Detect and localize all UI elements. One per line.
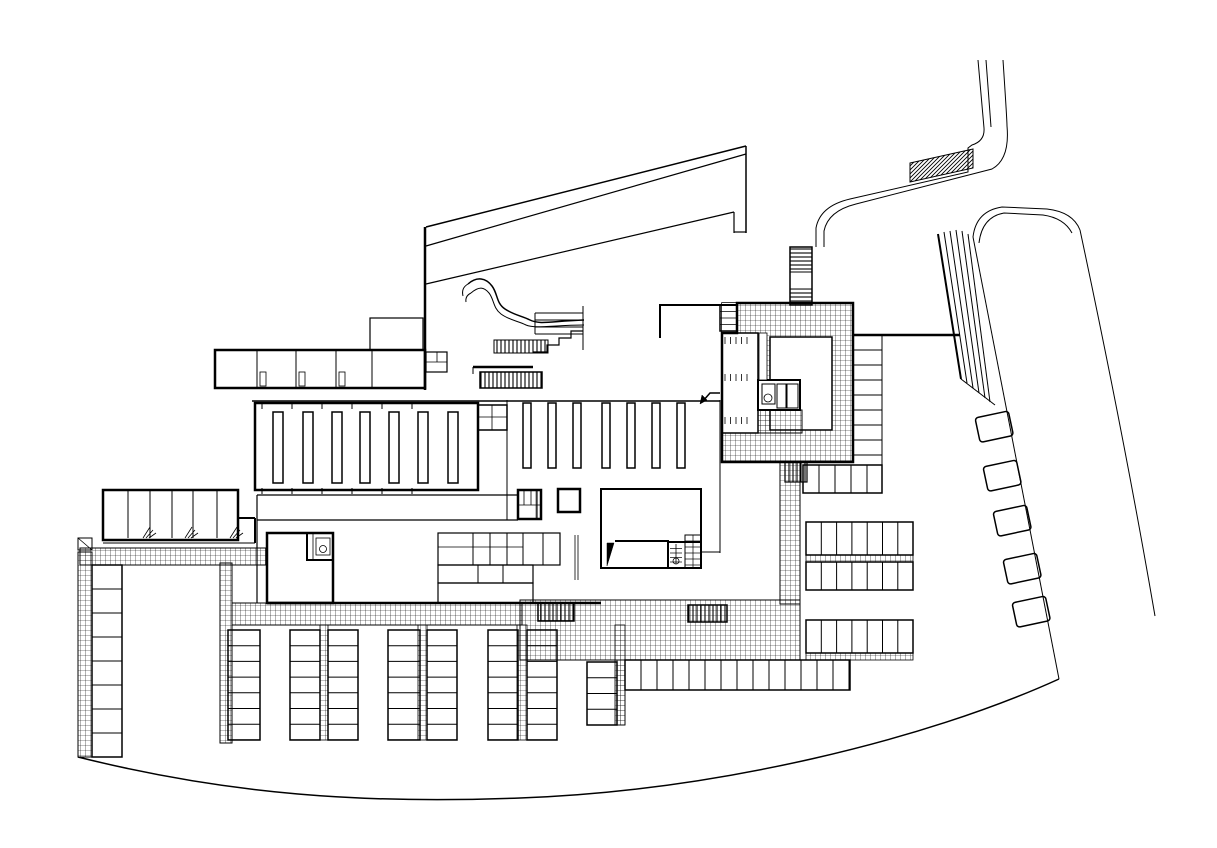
terminal-room-west xyxy=(722,333,758,433)
plaza-entry-stair-e xyxy=(688,605,727,622)
plaza-hatch-south-band xyxy=(232,603,522,625)
road-stair-upper xyxy=(790,247,812,272)
plaza-hatch-west-strip xyxy=(78,552,92,757)
plaza-hatch-west-band xyxy=(80,548,266,565)
paper-background xyxy=(0,0,1217,848)
stall-divider-strip-1 xyxy=(320,625,328,740)
kiosk-1-stair xyxy=(536,490,541,519)
east-row-hatch-1 xyxy=(806,555,913,562)
plaza-entry-stair-w xyxy=(538,603,574,621)
terminal-core-hatch xyxy=(758,410,802,433)
drawing-canvas xyxy=(0,0,1217,848)
cad-site-plan xyxy=(0,0,1217,848)
east-row-hatch-2 xyxy=(806,653,913,660)
apron-strip-east xyxy=(780,462,800,604)
terrace-stair xyxy=(480,372,542,388)
terrace-tread xyxy=(494,340,548,353)
plaza-hatch-strip-a xyxy=(220,563,232,743)
road-stair-lower xyxy=(790,289,812,305)
stall-divider-strip-5 xyxy=(617,660,625,725)
terminal-wall-gap xyxy=(759,333,767,380)
